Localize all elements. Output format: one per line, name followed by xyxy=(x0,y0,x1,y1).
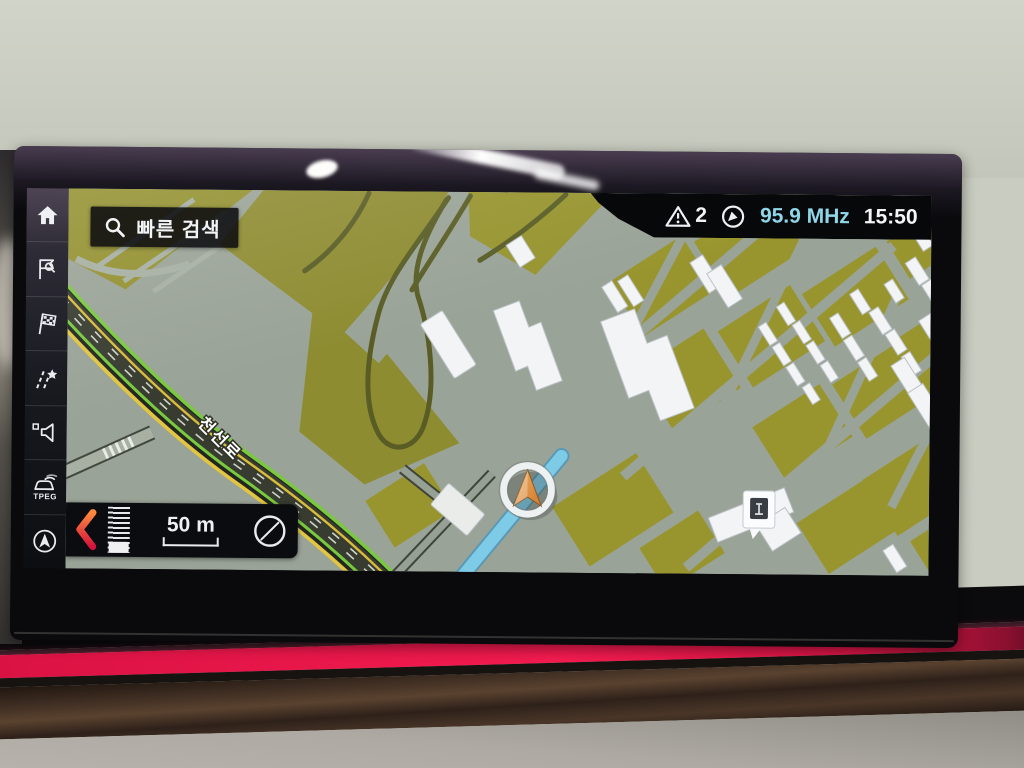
sidebar-item-destination[interactable] xyxy=(25,296,67,351)
compass-button[interactable] xyxy=(252,513,288,549)
bezel-bottom-edge xyxy=(14,632,954,642)
map-control-bar: 50 m xyxy=(66,502,298,558)
road-star-icon xyxy=(33,365,59,391)
sidebar-item-position[interactable] xyxy=(23,514,65,569)
sidebar-item-route[interactable] xyxy=(25,350,67,405)
tpeg-label: TPEG xyxy=(33,492,57,501)
map-scale-control[interactable]: 50 m xyxy=(140,514,242,547)
quick-search-label: 빠른 검색 xyxy=(136,212,220,242)
home-icon xyxy=(35,203,59,227)
clock: 15:50 xyxy=(864,205,918,229)
flag-search-icon xyxy=(34,256,60,282)
speaker-icon xyxy=(32,420,60,444)
warning-triangle-icon xyxy=(664,204,691,227)
sidebar-menu: TPEG xyxy=(23,188,68,568)
navigation-display: TPEG xyxy=(23,188,931,576)
position-arrow-icon xyxy=(32,528,58,554)
map-area: 천선로 xyxy=(65,188,931,576)
scale-bracket xyxy=(163,537,219,546)
traffic-info-icon xyxy=(721,204,746,229)
back-chevron-button[interactable] xyxy=(74,508,98,550)
map-scale-label: 50 m xyxy=(167,514,215,535)
tpeg-car-icon xyxy=(32,473,58,491)
checkered-flag-icon xyxy=(34,311,60,337)
search-icon xyxy=(104,216,125,237)
radio-frequency: 95.9 MHz xyxy=(760,204,850,229)
sidebar-item-tpeg[interactable]: TPEG xyxy=(24,459,66,514)
zoom-scale-slider[interactable] xyxy=(108,507,130,553)
warning-badge[interactable]: 2 xyxy=(664,204,707,228)
warning-count: 2 xyxy=(695,204,707,228)
photo-scene: TPEG xyxy=(0,0,1024,768)
sidebar-item-home[interactable] xyxy=(26,188,68,242)
infotainment-screen: TPEG xyxy=(10,146,962,648)
quick-search-bar[interactable]: 빠른 검색 xyxy=(90,207,239,248)
sidebar-item-poi-search[interactable] xyxy=(26,241,68,296)
sidebar-item-audio[interactable] xyxy=(24,405,66,460)
